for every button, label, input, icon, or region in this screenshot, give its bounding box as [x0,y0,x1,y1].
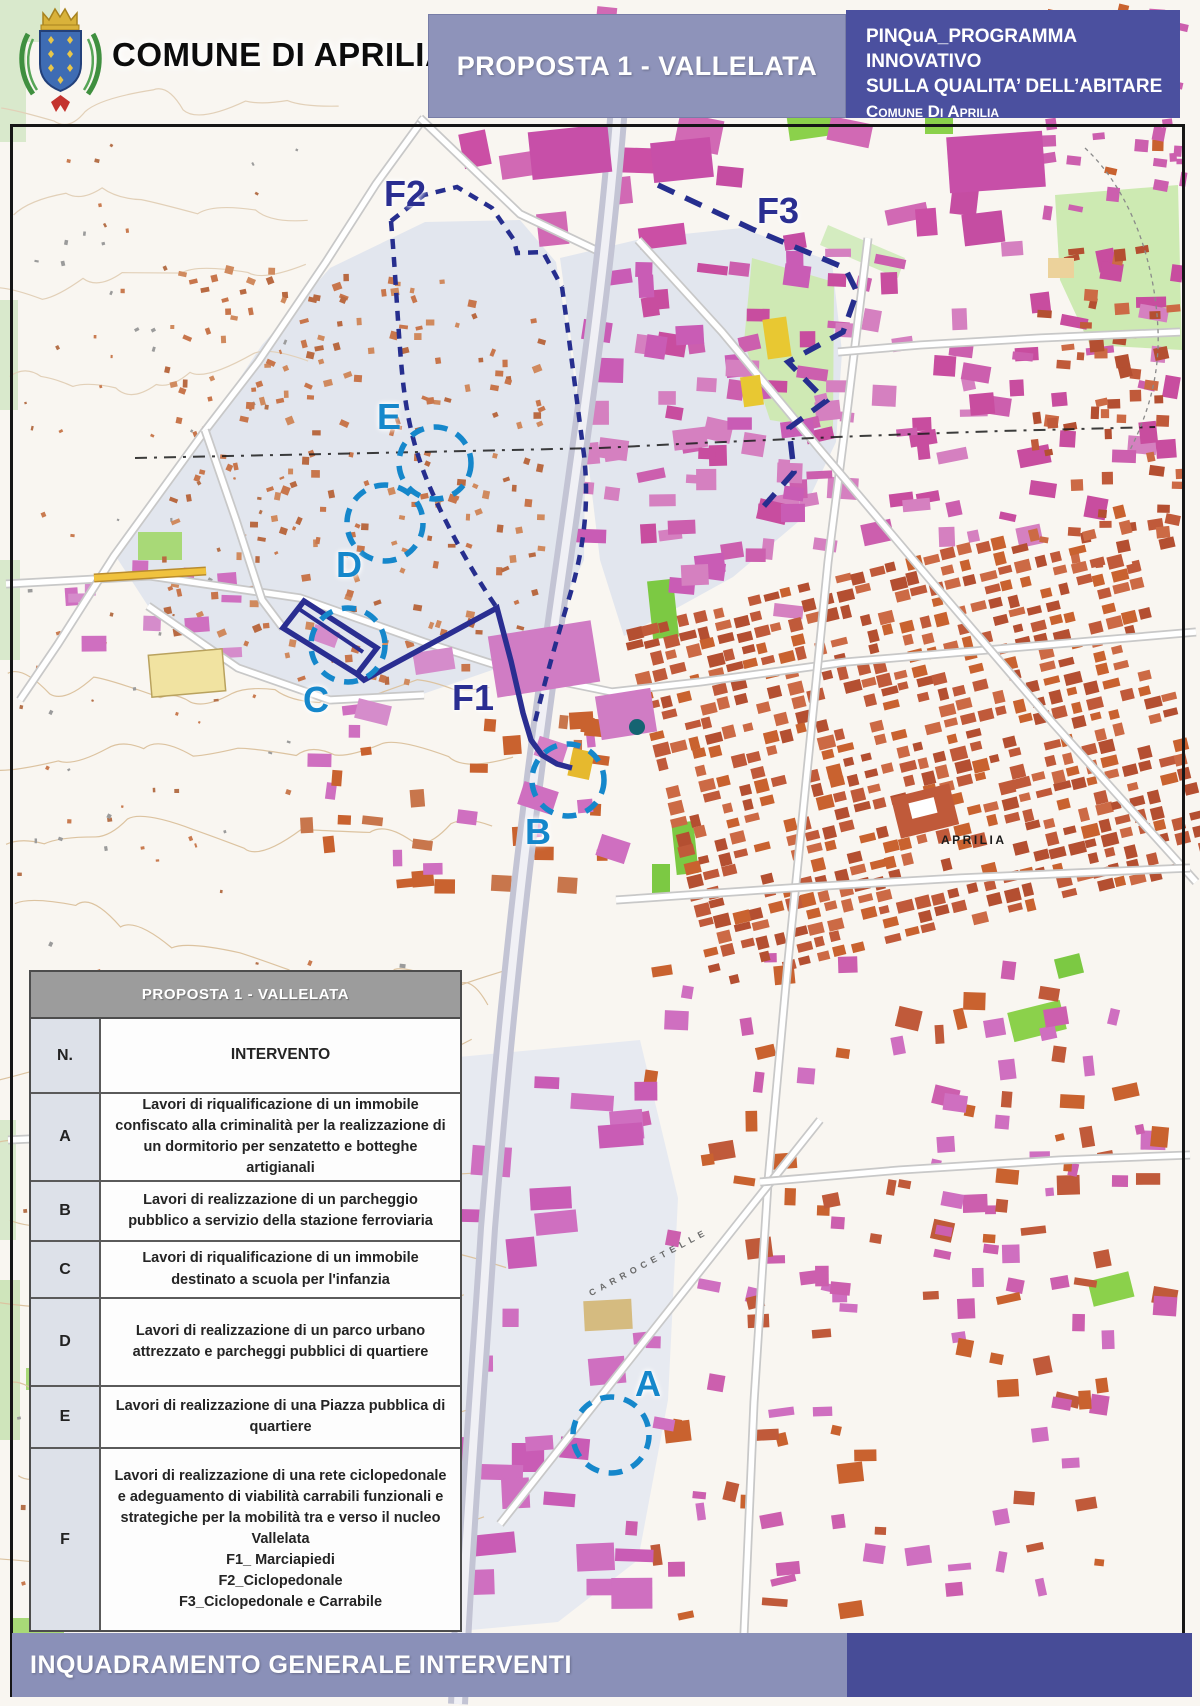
table-header-row: N. INTERVENTO [31,1019,460,1092]
program-line-2: SULLA QUALITA’ DELL’ABITARE [866,74,1180,99]
marker-label-a: A [635,1366,661,1402]
row-text: Lavori di riqualificazione di un immobil… [101,1094,460,1180]
program-title-box: PINQuA_PROGRAMMA INNOVATIVO SULLA QUALIT… [846,10,1180,118]
marker-label-f2: F2 [384,176,426,212]
proposal-title-box: PROPOSTA 1 - VALLELATA [428,14,846,118]
table-row: C Lavori di riqualificazione di un immob… [31,1240,460,1297]
row-letter: E [31,1387,101,1447]
marker-label-e: E [377,399,401,435]
proposal-title: PROPOSTA 1 - VALLELATA [457,51,818,82]
row-text: Lavori di realizzazione di una rete cicl… [101,1449,460,1630]
row-text: Lavori di realizzazione di un parco urba… [101,1299,460,1385]
row-text: Lavori di riqualificazione di un immobil… [101,1242,460,1297]
footer-bar: INQUADRAMENTO GENERALE INTERVENTI [12,1633,1192,1697]
plan-sheet: F2 F3 E D C F1 B A APRILIA CARROCETELLE … [0,0,1200,1706]
crown-icon [43,9,77,26]
marker-label-c: C [303,682,329,718]
row-letter: B [31,1182,101,1240]
column-header-n: N. [31,1019,101,1092]
marker-label-f1: F1 [452,680,494,716]
marker-label-d: D [336,547,362,583]
program-line-3: Comune Di Aprilia [866,102,1180,122]
city-name-label: APRILIA [941,833,1007,847]
table-row: A Lavori di riqualificazione di un immob… [31,1092,460,1180]
row-letter: A [31,1094,101,1180]
marker-label-b: B [525,814,551,850]
gasometer-dot [629,719,645,735]
municipality-title: COMUNE DI APRILIA [112,36,449,74]
marker-label-f3: F3 [757,193,799,229]
row-letter: F [31,1449,101,1630]
table-row: B Lavori di realizzazione di un parchegg… [31,1180,460,1240]
footer-title: INQUADRAMENTO GENERALE INTERVENTI [30,1633,572,1697]
table-title: PROPOSTA 1 - VALLELATA [31,972,460,1019]
row-text: Lavori di realizzazione di un parcheggio… [101,1182,460,1240]
column-header-intervento: INTERVENTO [101,1019,460,1092]
program-line-1: PINQuA_PROGRAMMA INNOVATIVO [866,24,1180,74]
ribbon-icon [51,95,70,112]
row-letter: C [31,1242,101,1297]
table-row: D Lavori di realizzazione di un parco ur… [31,1297,460,1385]
table-row: F Lavori di realizzazione di una rete ci… [31,1447,460,1630]
municipality-coat-of-arms [13,4,108,116]
row-letter: D [31,1299,101,1385]
table-row: E Lavori di realizzazione di una Piazza … [31,1385,460,1447]
footer-accent-block [847,1633,1192,1697]
interventions-table: PROPOSTA 1 - VALLELATA N. INTERVENTO A L… [29,970,462,1632]
row-text: Lavori di realizzazione di una Piazza pu… [101,1387,460,1447]
